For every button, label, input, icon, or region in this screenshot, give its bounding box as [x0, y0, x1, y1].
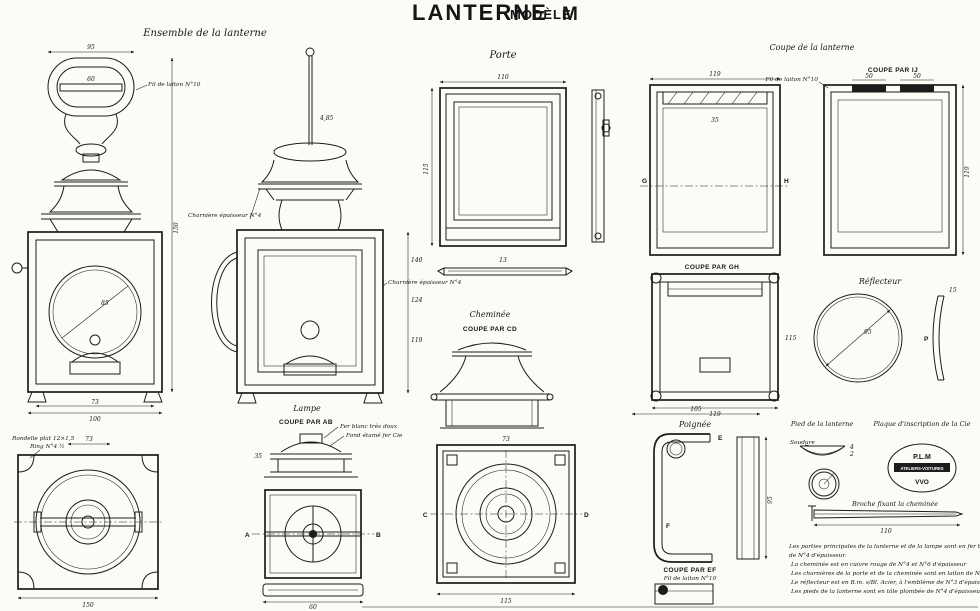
dim-label: 110 — [880, 528, 892, 535]
dim-label: 115 — [500, 598, 512, 605]
stamp-vvo: VVO — [915, 479, 929, 486]
note-line: de N°4 d'épaisseur. — [789, 552, 846, 559]
view-plaque: Plaque d'inscription de la Cie P.L.M ATE… — [873, 420, 971, 492]
dim-label: 4,85 — [319, 115, 334, 122]
lamp-bottom-strip — [263, 584, 363, 596]
material-notes: Les parties principales de la lanterne e… — [788, 544, 980, 595]
dim-label: 73 — [502, 436, 510, 443]
dim-label: 110 — [497, 74, 509, 81]
plaque-label: Plaque d'inscription de la Cie — [873, 420, 971, 428]
section-letter: D — [584, 512, 589, 519]
cap-shape — [41, 170, 141, 232]
dim-label: 35 — [254, 453, 262, 460]
dim-label: 119 — [411, 337, 423, 344]
section-letter: C — [423, 512, 428, 519]
dim-label: 15 — [949, 287, 957, 294]
section-letter: G — [642, 178, 647, 185]
handle-strap-shape — [737, 437, 759, 559]
section-letter: P — [924, 336, 929, 343]
dim-label: 119 — [709, 411, 721, 418]
charniere-annotation: Charnière épaisseur N°4 — [388, 279, 462, 286]
drawing-sheet: LANTERNE MODÈLE M Ensemble de la lantern… — [0, 0, 980, 611]
foot-bowl-shape — [800, 446, 845, 455]
reflector-profile-shape — [933, 296, 944, 380]
company-stamp: P.L.M ATELIERS-VOITURES VVO — [888, 444, 956, 492]
dim-label: 13 — [499, 257, 507, 264]
ef-section-shape — [655, 584, 713, 604]
door-bottom-section — [438, 268, 572, 275]
view-base: Rondelle plat 12×1,5 Ring N°4 ½ 73 150 — [11, 436, 162, 609]
view-reflecteur: Réflecteur 95 P 15 — [814, 277, 957, 382]
pin-shape — [808, 506, 962, 521]
plan-gh-shape — [651, 273, 779, 401]
foot-ring-shape — [809, 469, 839, 499]
note-line: Les parties principales de la lanterne e… — [788, 544, 980, 550]
reflector-shape — [814, 294, 902, 382]
view-porte-label: Porte — [488, 50, 516, 61]
dim-label: 119 — [709, 71, 721, 78]
view-cheminee: Cheminée COUPE PAR CD 73 — [423, 310, 589, 605]
view-coupe-gh: COUPE PAR GH 119 115 — [651, 264, 797, 418]
fil-laiton-annotation: Fil de laiton N°10 — [765, 77, 819, 83]
profil-dimensions: 140 124 119 — [408, 232, 423, 393]
note-line: Les charnières de la porte et de la chem… — [790, 570, 980, 577]
chimney-section-shape — [431, 343, 553, 428]
view-lampe: Lampe COUPE PAR AB Fer blanc très doux F… — [245, 404, 403, 611]
section-shape — [650, 85, 780, 255]
cheminee-label: Cheminée — [470, 310, 511, 319]
dim-label: 119 — [964, 166, 971, 178]
body-shape — [12, 232, 162, 402]
lantern-blueprint: LANTERNE MODÈLE M Ensemble de la lantern… — [0, 0, 980, 611]
soudure-annotation: Soudure — [790, 440, 815, 446]
section-letter: F — [666, 523, 670, 530]
reflecteur-label: Réflecteur — [858, 277, 902, 286]
dim-label: 50 — [865, 73, 873, 80]
view-poignee: 105 Poignée E F 95 COUPE PAR EF Fil de l… — [632, 406, 774, 604]
base-plan-shape — [14, 455, 162, 589]
rod-shape — [306, 48, 314, 145]
lampe-annotation: Fer blanc très doux — [339, 423, 398, 430]
pied-label: Pied de la lanterne — [790, 420, 854, 428]
view-coupe-lanterne: Coupe de la lanterne G H 119 35 — [640, 43, 855, 255]
view-ensemble-label: Ensemble de la lanterne — [142, 28, 267, 39]
dim-label: 60 — [87, 76, 95, 83]
dim-label: 73 — [85, 436, 93, 443]
neck-shape — [65, 114, 118, 162]
stamp-ateliers: ATELIERS-VOITURES — [900, 466, 943, 471]
base-annotation: Rondelle plat 12×1,5 — [11, 436, 75, 442]
body-shape-profil — [212, 230, 384, 403]
fil-laiton-annotation: Fil de laiton N°10 — [147, 82, 201, 88]
lamp-section-shape — [264, 434, 358, 477]
broche-label: Broche fixant la cheminée — [851, 500, 938, 508]
coupe-ij-label: COUPE PAR IJ — [868, 67, 918, 74]
note-line: Le réflecteur est en B.m. s/Bl. Acier, à… — [790, 579, 980, 586]
coupe-cd-label: COUPE PAR CD — [463, 326, 517, 333]
dim-label: 105 — [690, 406, 702, 413]
dim-label: 95 — [864, 329, 872, 336]
section-letter: E — [718, 435, 723, 442]
view-profil: 4,85 Charnière épaisseur N°4 Charnière é… — [188, 48, 462, 403]
dim-label: 140 — [411, 257, 423, 264]
coupe-lanterne-label: Coupe de la lanterne — [770, 43, 855, 52]
view-broche: Broche fixant la cheminée 110 — [808, 500, 962, 535]
dim-label: 60 — [309, 604, 317, 611]
view-coupe-ij: COUPE PAR IJ Fil de laiton N°10 50 50 11… — [765, 67, 971, 255]
dim-label: 95 — [87, 44, 95, 51]
dim-label: 150 — [82, 602, 94, 609]
stamp-plm: P.L.M — [913, 454, 931, 461]
dim-label: 115 — [785, 335, 797, 342]
door-side-profile — [592, 90, 610, 242]
note-line: Les pieds de la lanterne sont en tôle pl… — [790, 588, 980, 595]
cap-shape-profil — [258, 143, 362, 230]
dim-label: 85 — [101, 300, 109, 307]
dim-label: 73 — [91, 399, 99, 406]
dim-label: 100 — [89, 416, 101, 423]
dim-label: 50 — [913, 73, 921, 80]
section-ij-shape — [824, 85, 956, 255]
door-shape — [440, 88, 566, 246]
base-annotation: Ring N°4 ½ — [29, 443, 65, 450]
note-line: La cheminée est en cuivre rouge de N°4 e… — [790, 561, 968, 568]
view-pied: Pied de la lanterne Soudure 4 2 — [790, 420, 854, 499]
section-letter: H — [784, 178, 789, 185]
lamp-plan-shape — [252, 490, 374, 578]
view-ensemble: Ensemble de la lanterne Fil de laiton N°… — [12, 28, 267, 423]
handle-shape — [48, 58, 134, 116]
page-title: LANTERNE MODÈLE M — [412, 0, 578, 25]
dim-label: 2 — [849, 451, 854, 458]
dim-label: 4 — [849, 444, 854, 451]
lampe-annotation: Fond étamé fer Cie — [345, 432, 403, 439]
chimney-plan-shape — [430, 445, 582, 583]
coupe-gh-label: COUPE PAR GH — [685, 264, 740, 271]
title-model-letter: M — [562, 4, 578, 25]
coupe-ab-label: COUPE PAR AB — [279, 419, 333, 426]
lampe-label: Lampe — [292, 404, 321, 413]
dim-label: 124 — [411, 297, 423, 304]
dim-label: 35 — [711, 117, 719, 124]
dim-label: 115 — [423, 163, 430, 175]
section-letter: A — [245, 532, 250, 539]
fil-laiton-annotation: Fil de laiton N°10 — [663, 576, 717, 582]
dim-label: 150 — [173, 222, 180, 234]
coupe-ef-label: COUPE PAR EF — [663, 567, 716, 574]
section-letter: B — [376, 532, 381, 539]
ensemble-dimensions: 95 60 150 85 73 100 — [28, 44, 180, 423]
view-porte: Porte 110 115 13 — [423, 50, 610, 275]
dim-label: 95 — [767, 496, 774, 504]
poignee-label: Poignée — [678, 420, 711, 429]
handle-profile-shape — [654, 434, 712, 562]
